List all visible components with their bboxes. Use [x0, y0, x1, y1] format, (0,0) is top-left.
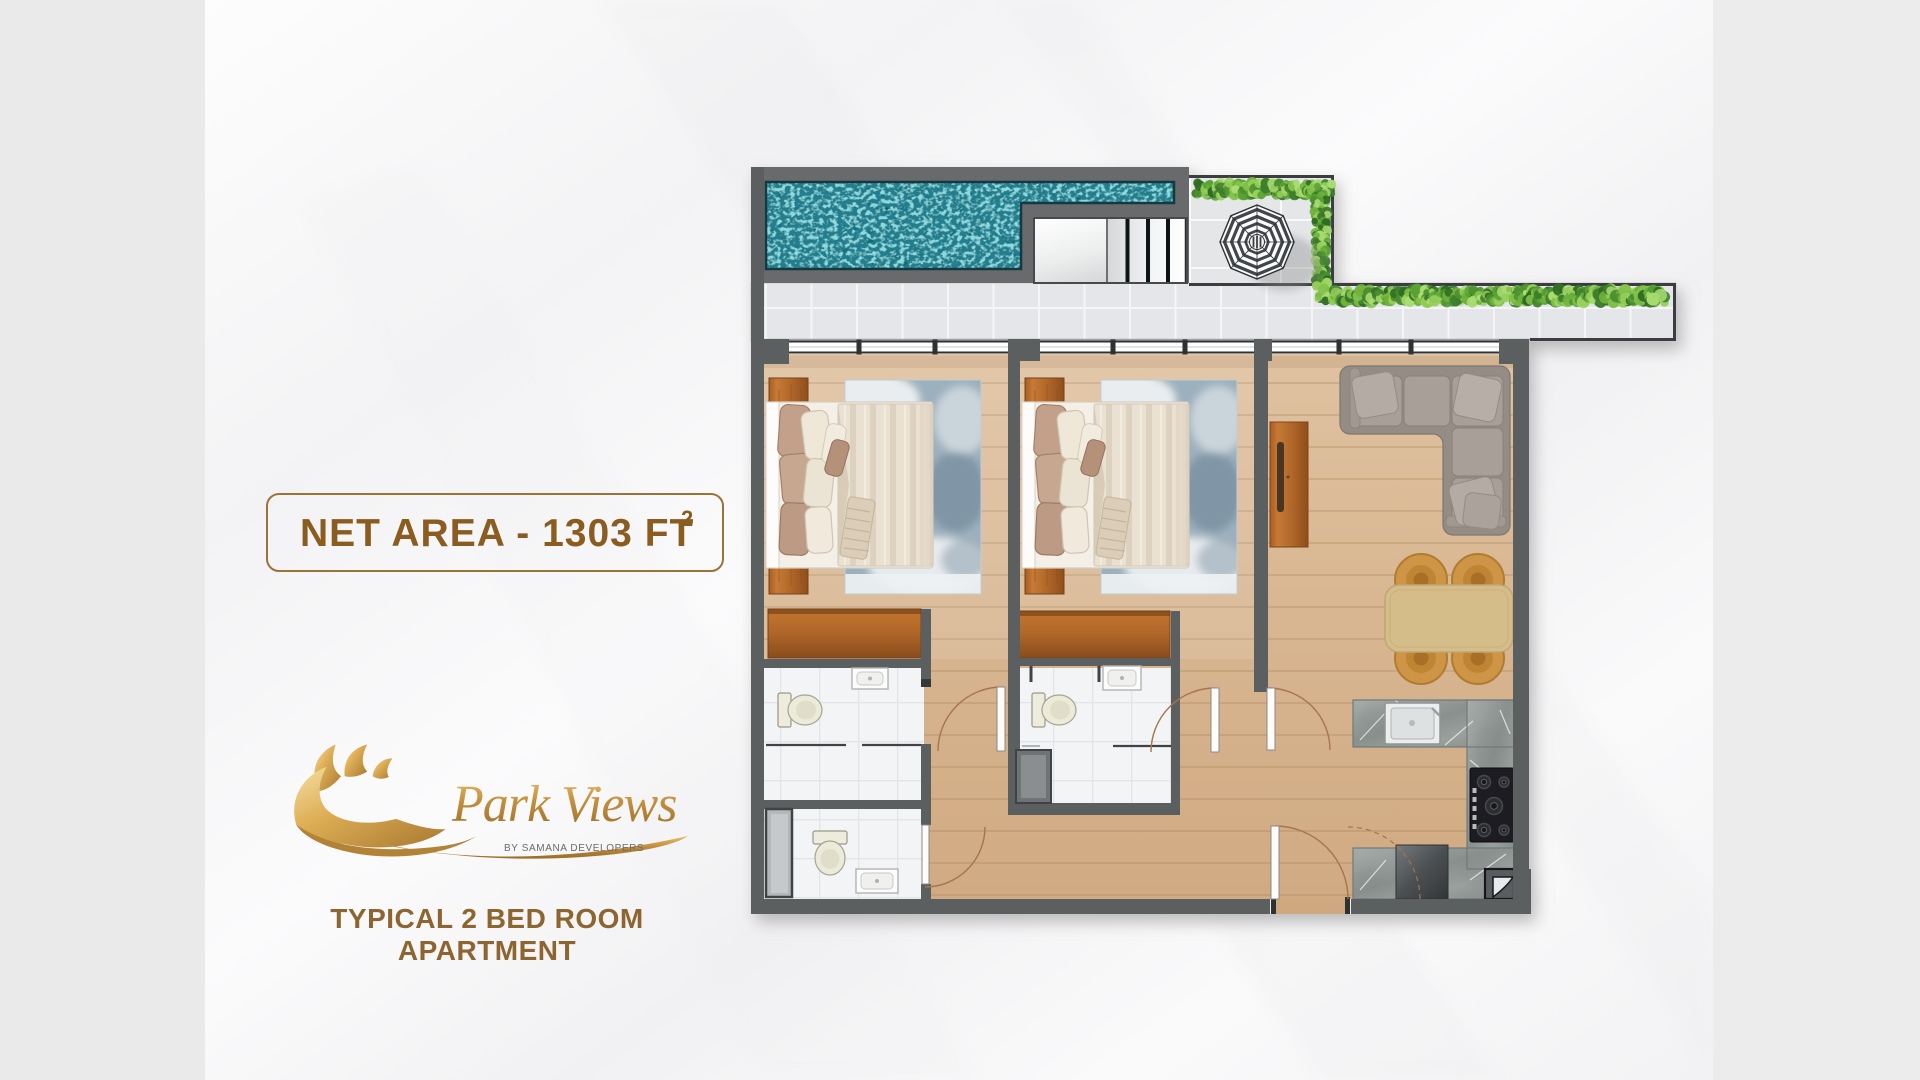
svg-text:BY SAMANA DEVELOPERS: BY SAMANA DEVELOPERS — [504, 843, 644, 854]
svg-text:NET AREA - 1303 FT: NET AREA - 1303 FT — [300, 512, 694, 555]
svg-text:APARTMENT: APARTMENT — [398, 935, 576, 966]
svg-text:TYPICAL 2 BED ROOM: TYPICAL 2 BED ROOM — [330, 903, 643, 934]
svg-text:2: 2 — [681, 506, 693, 531]
svg-text:Park Views: Park Views — [451, 776, 676, 833]
